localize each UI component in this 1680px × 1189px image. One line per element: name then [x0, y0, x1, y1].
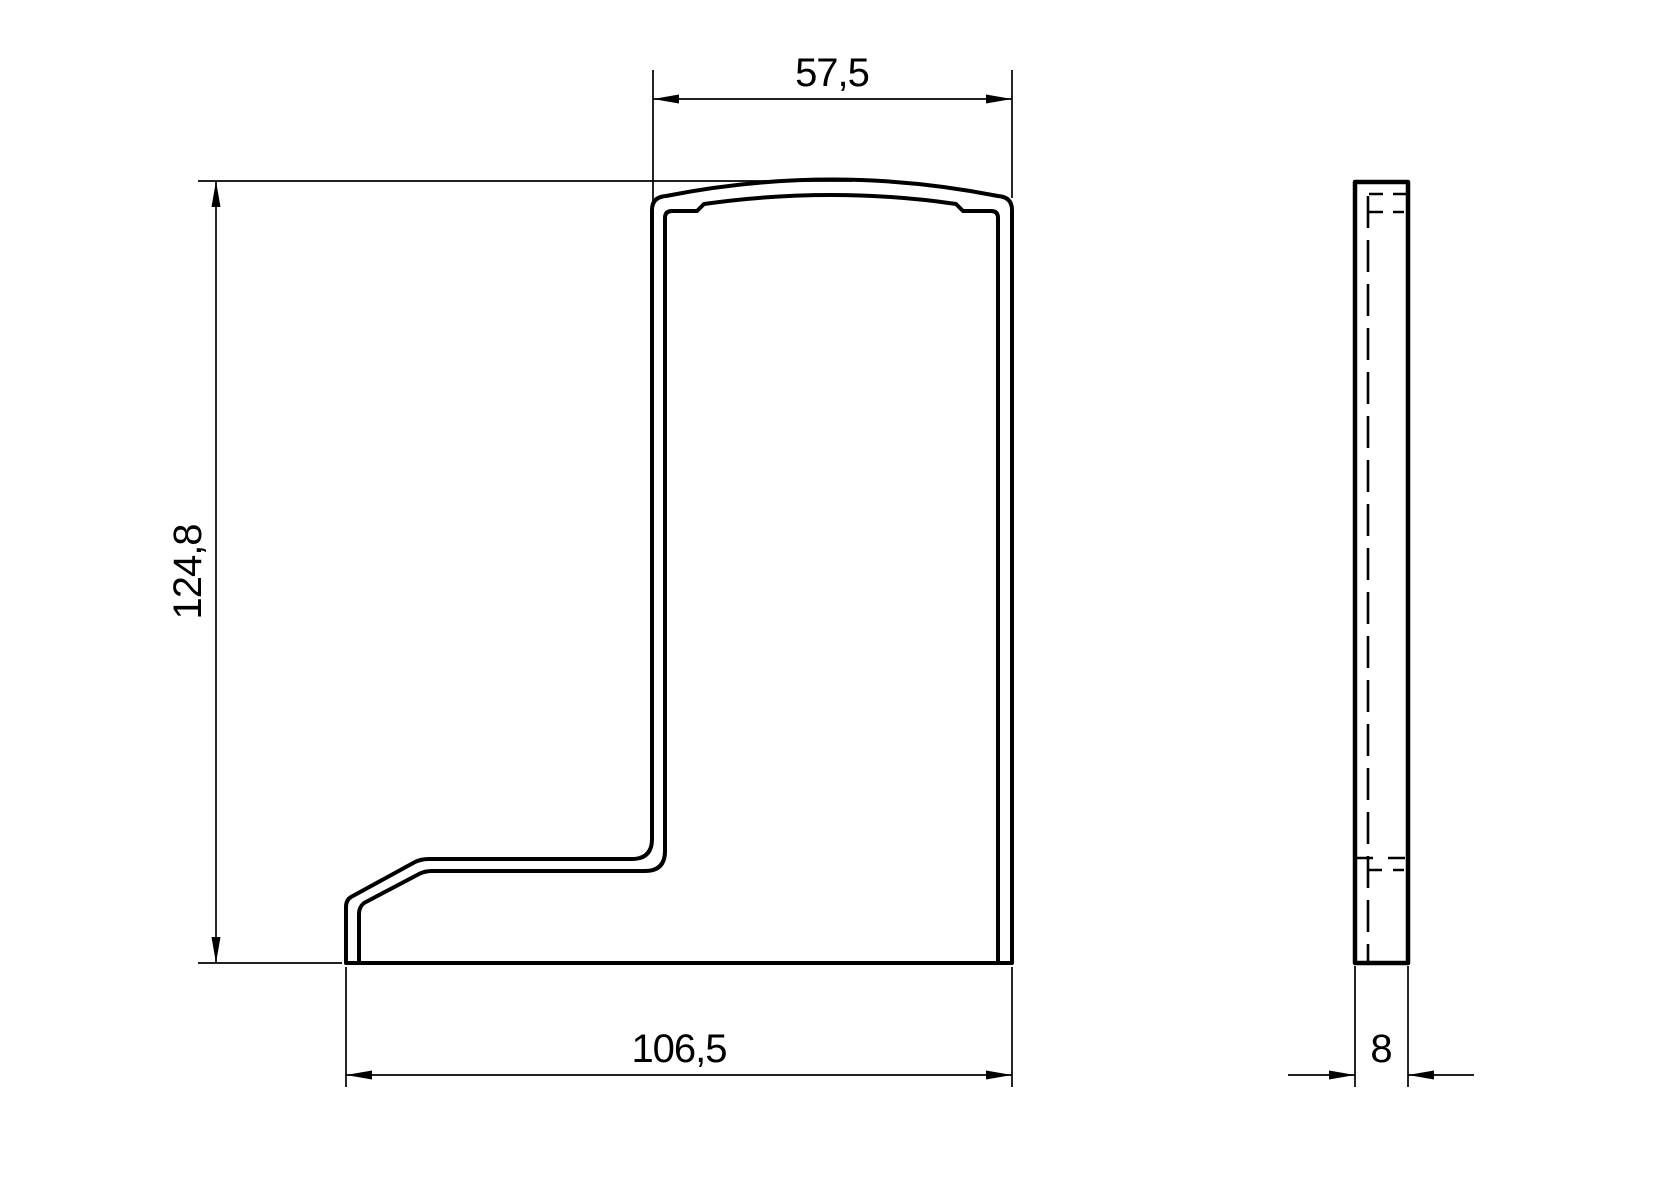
arrowhead-bottom [212, 937, 221, 963]
dimension-bottom-width: 106,5 [346, 967, 1012, 1087]
technical-drawing: 57,5 124,8 106,5 8 [0, 0, 1680, 1189]
dimension-thickness: 8 [1288, 966, 1474, 1087]
arrowhead-left [653, 95, 679, 104]
arrowhead-right-outside [1408, 1071, 1434, 1080]
side-view [1355, 182, 1408, 963]
arrowhead-left [346, 1071, 372, 1080]
dimension-value-top-width: 57,5 [795, 51, 869, 95]
dimension-value-height: 124,8 [166, 524, 210, 619]
arrowhead-left-outside [1329, 1071, 1355, 1080]
dimension-height: 124,8 [166, 181, 852, 963]
front-view [346, 180, 1012, 964]
arrowhead-top [212, 181, 221, 207]
arrowhead-right [986, 1071, 1012, 1080]
front-view-inner-contour [359, 195, 998, 963]
side-view-outline [1355, 182, 1408, 963]
dimension-value-thickness: 8 [1370, 1027, 1391, 1071]
dimension-value-bottom-width: 106,5 [631, 1027, 726, 1071]
side-view-hidden-edges [1356, 194, 1407, 961]
front-view-outer-contour [346, 180, 1012, 964]
arrowhead-right [986, 95, 1012, 104]
